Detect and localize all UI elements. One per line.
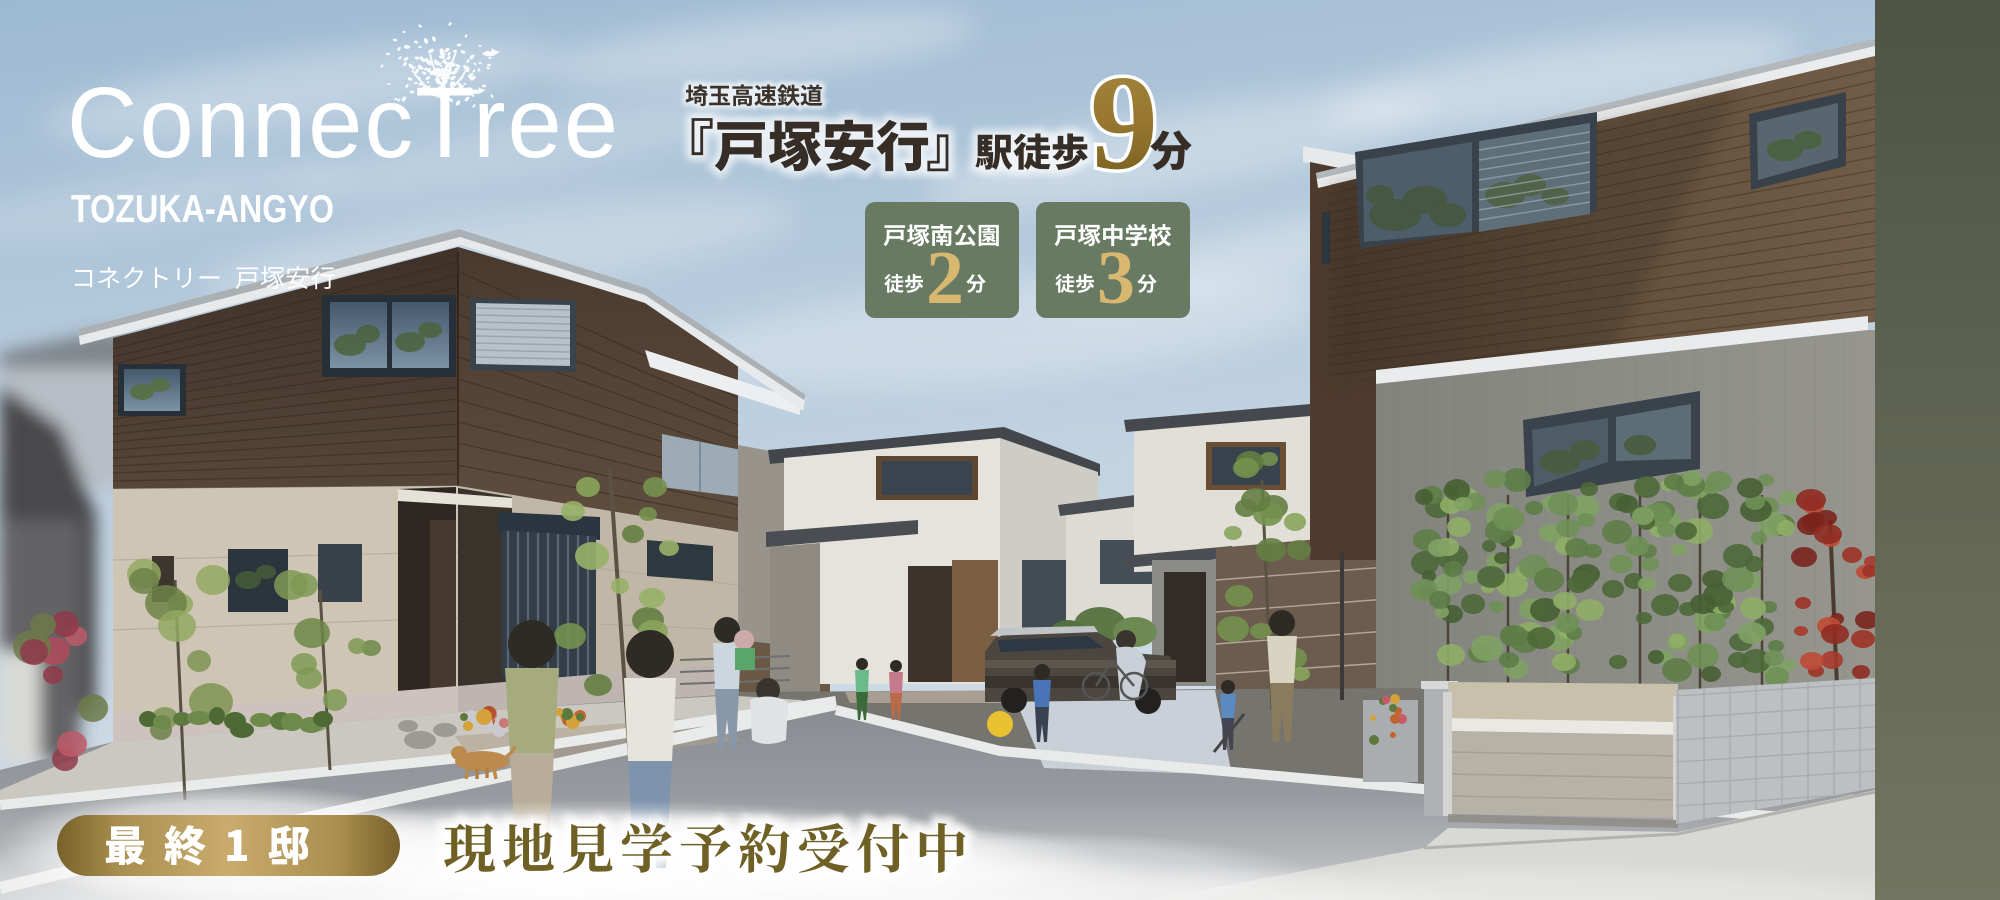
svg-text:2: 2	[926, 236, 964, 320]
svg-text:3: 3	[1097, 236, 1135, 320]
svg-text:9: 9	[1090, 48, 1158, 198]
svg-text:TOZUKA-ANGYO: TOZUKA-ANGYO	[71, 188, 334, 231]
svg-text:ConnecTree: ConnecTree	[67, 67, 620, 179]
